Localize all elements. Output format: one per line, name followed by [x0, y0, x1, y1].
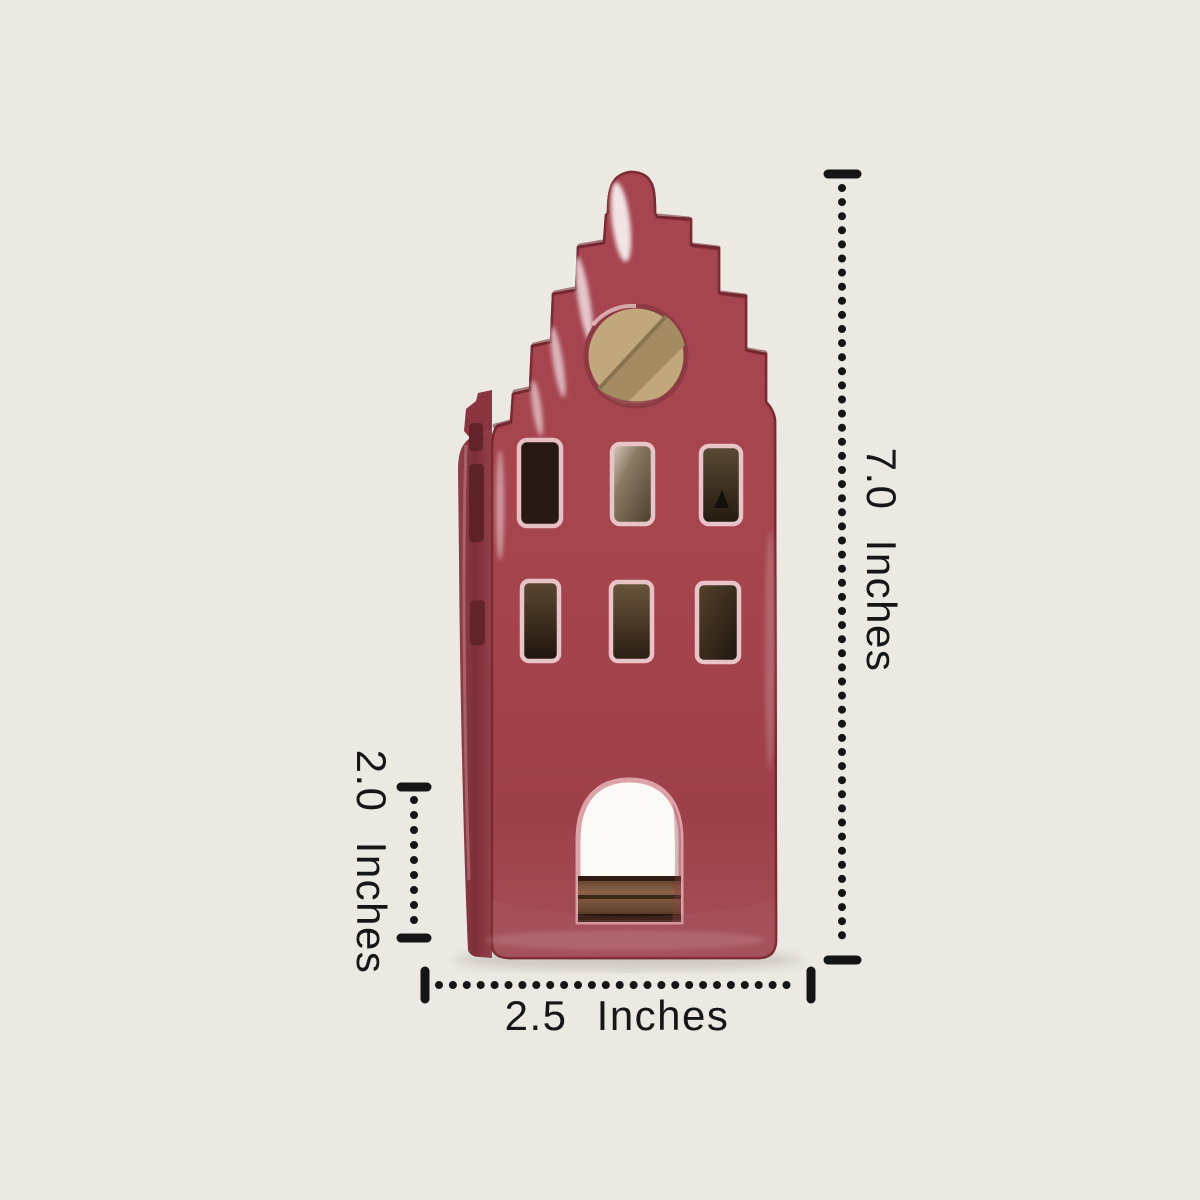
product-dimension-image: 7.0 Inches 2.0 Inches 2.5 Inches	[0, 0, 1200, 1200]
upper-window-row	[519, 440, 741, 526]
lower-height-dimension-line	[401, 787, 427, 938]
window-upper-middle	[612, 444, 653, 524]
lower-window-row	[522, 581, 739, 662]
height-dimension-label: 7.0 Inches	[857, 448, 905, 673]
window-upper-left	[519, 440, 561, 526]
window-lower-right	[697, 583, 739, 662]
lower-height-dimension-label: 2.0 Inches	[347, 750, 395, 975]
window-upper-right	[701, 446, 741, 524]
window-lower-middle	[611, 582, 652, 661]
width-dimension-label: 2.5 Inches	[505, 992, 730, 1040]
window-lower-left	[522, 581, 559, 661]
arched-doorway	[574, 780, 686, 922]
house-side-face	[458, 390, 492, 958]
house-front-face	[485, 172, 776, 958]
height-dimension-line	[828, 174, 857, 960]
